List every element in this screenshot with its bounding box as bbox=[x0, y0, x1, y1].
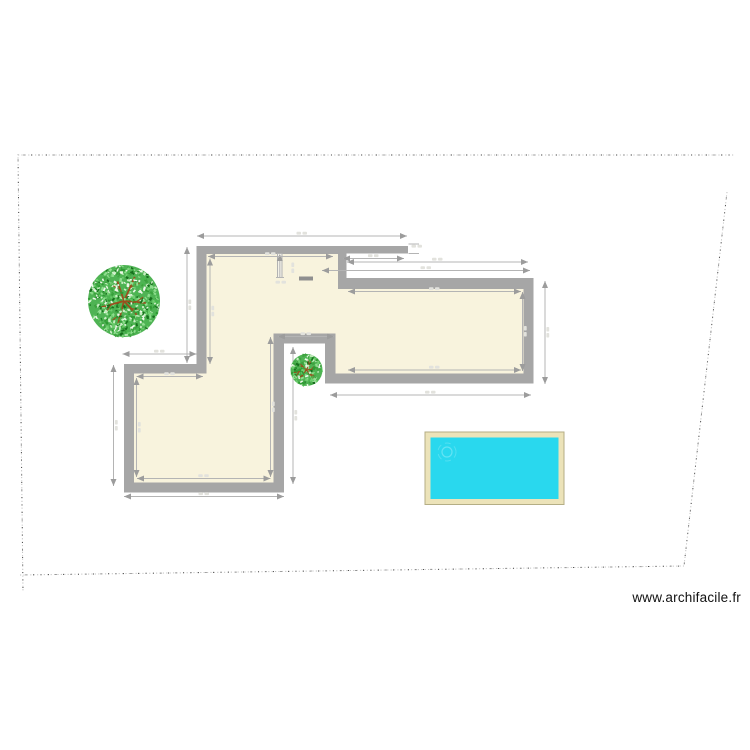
door-marker bbox=[299, 277, 313, 281]
tree-large[interactable] bbox=[88, 265, 160, 338]
floor-plan-canvas bbox=[0, 0, 750, 750]
floor-plan-page: www.archifacile.fr bbox=[0, 0, 750, 750]
pool-water bbox=[431, 438, 559, 500]
swimming-pool[interactable] bbox=[425, 432, 564, 505]
tree-small[interactable] bbox=[290, 353, 323, 387]
watermark: www.archifacile.fr bbox=[632, 590, 741, 605]
